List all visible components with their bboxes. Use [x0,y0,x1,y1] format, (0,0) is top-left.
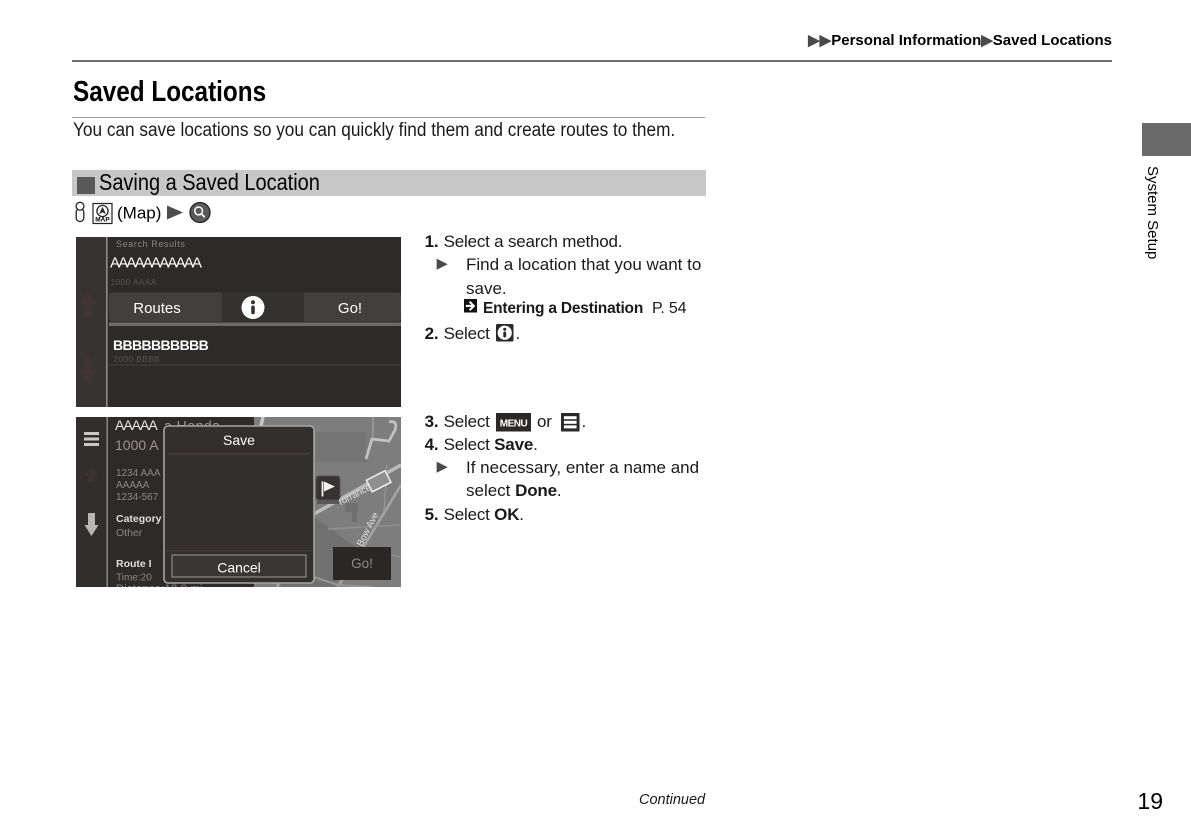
svg-text:2000 BBBB: 2000 BBBB [114,354,161,364]
svg-text:Go!: Go! [351,556,373,571]
svg-text:AAAAAAAAAAA: AAAAAAAAAAA [110,255,202,272]
svg-text:(Map): (Map) [117,204,161,223]
svg-text:AAAAA: AAAAA [115,417,158,433]
svg-text:Go!: Go! [338,300,362,317]
svg-text:Category: Category [116,513,162,525]
svg-text:MENU: MENU [500,419,528,430]
svg-text:Search Results: Search Results [116,239,185,249]
svg-text:BBBBBBBBBB: BBBBBBBBBB [113,337,209,353]
svg-text:AAAAA: AAAAA [116,480,150,491]
svg-text:1234-567: 1234-567 [116,492,159,503]
svg-text:Other: Other [116,527,143,539]
svg-text:Cancel: Cancel [217,560,261,576]
svg-text:Route I: Route I [116,558,152,570]
svg-text:1000 A: 1000 A [115,437,159,453]
svg-text:MAP: MAP [95,217,110,224]
svg-text:1000 AAAA: 1000 AAAA [111,277,157,287]
svg-text:1234 AAA: 1234 AAA [116,468,161,479]
svg-text:Routes: Routes [133,300,181,317]
svg-text:Time:20: Time:20 [116,573,152,584]
svg-text:Save: Save [223,432,255,448]
